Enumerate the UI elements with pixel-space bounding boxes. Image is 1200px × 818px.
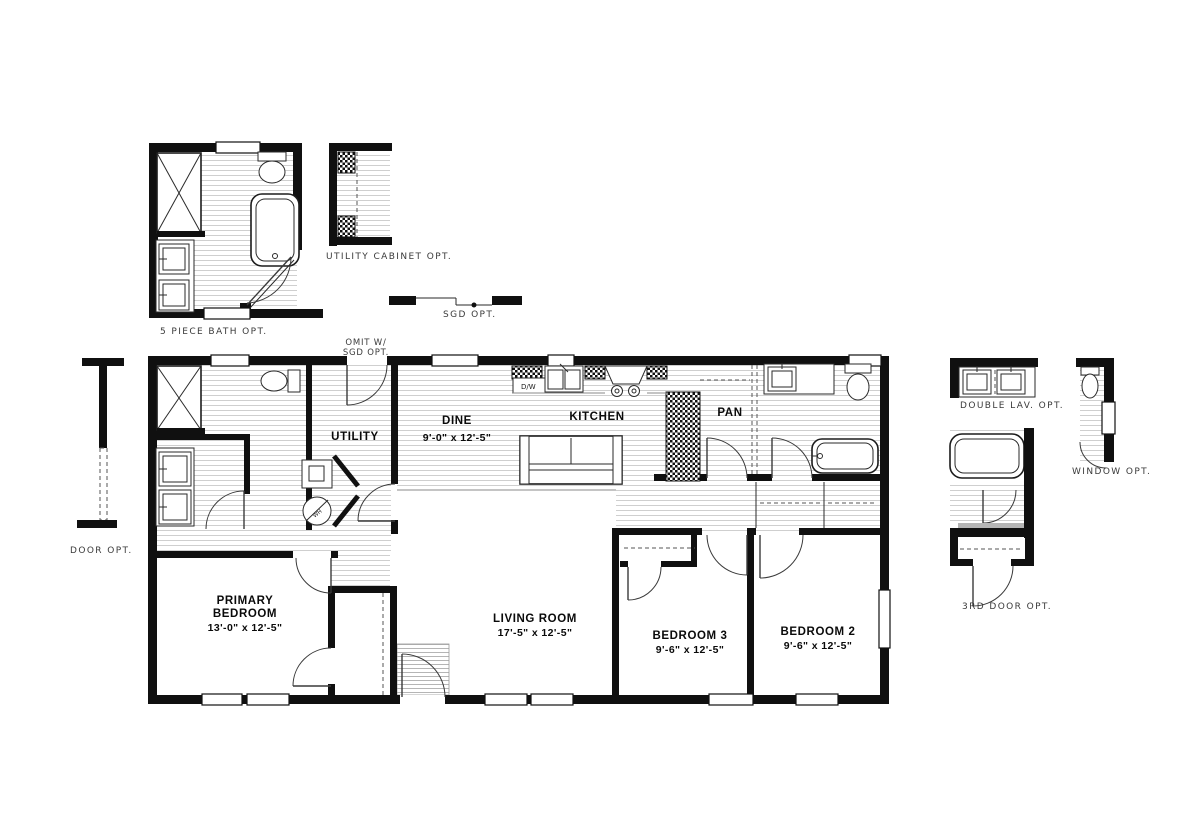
- omit-sgd-note: OMIT W/ SGD OPT.: [343, 338, 389, 358]
- shower-fixture: [157, 366, 205, 434]
- label-primary-bedroom-2: BEDROOM: [213, 608, 277, 620]
- label-sgd-opt: SGD OPT.: [443, 310, 496, 320]
- bath-vanity: [764, 363, 834, 394]
- label-utility: UTILITY: [331, 431, 379, 443]
- detail-5-piece-bath: 5 PIECE BATH OPT.: [149, 142, 323, 337]
- label-kitchen: KITCHEN: [569, 411, 624, 423]
- toilet-fixture: [258, 152, 286, 183]
- kitchen-island: [520, 436, 622, 484]
- backsplash-tile: [585, 366, 605, 379]
- floor-plan-page: 5 PIECE BATH OPT. UTILITY CABINET OPT. S…: [0, 0, 1200, 818]
- pantry-cabinet-block: [666, 392, 700, 481]
- label-5-piece-bath-opt: 5 PIECE BATH OPT.: [160, 327, 268, 337]
- label-bedroom-2: BEDROOM 2: [780, 626, 855, 638]
- dims-primary-bedroom: 13'-0" x 12'-5": [208, 622, 283, 634]
- label-bedroom-3: BEDROOM 3: [652, 630, 727, 642]
- third-door-floor-top: [950, 428, 1026, 434]
- furnace-box: [302, 460, 332, 488]
- lav-sink-1: [963, 366, 991, 394]
- water-heater: WH: [303, 497, 331, 525]
- backsplash-tile: [647, 366, 667, 379]
- dims-living-room: 17'-5" x 12'-5": [498, 627, 573, 639]
- label-living-room: LIVING ROOM: [493, 613, 577, 625]
- sgd-handle-dot: [472, 303, 477, 308]
- cabinet-block-top: [338, 152, 355, 173]
- label-primary-bedroom-1: PRIMARY: [217, 595, 274, 607]
- optional-window: [1102, 402, 1115, 434]
- dims-dine: 9'-0" x 12'-5": [423, 432, 491, 444]
- tub-fixture: [812, 439, 878, 473]
- floor-plan-drawing: 5 PIECE BATH OPT. UTILITY CABINET OPT. S…: [0, 0, 1200, 818]
- svg-text:D/W: D/W: [521, 383, 536, 391]
- dishwasher: D/W: [513, 378, 545, 393]
- bath-window-top: [216, 142, 260, 153]
- label-window-opt: WINDOW OPT.: [1072, 467, 1151, 477]
- label-door-opt: DOOR OPT.: [70, 546, 133, 556]
- label-pantry: PAN: [717, 407, 742, 419]
- dims-bedroom-3: 9'-6" x 12'-5": [656, 644, 724, 656]
- label-omit-line2: SGD OPT.: [343, 348, 389, 358]
- third-door-hall-floor: [950, 482, 1026, 524]
- cabinet-block-bottom: [338, 216, 355, 237]
- double-sink-vanity: [156, 448, 194, 526]
- label-utility-cabinet-opt: UTILITY CABINET OPT.: [326, 252, 452, 262]
- kitchen-sink: [545, 364, 583, 392]
- backsplash-tile: [512, 366, 542, 379]
- removed-wall-band: [958, 523, 1024, 528]
- label-3rd-door-opt: 3RD DOOR OPT.: [962, 602, 1052, 612]
- double-sink-vanity: [156, 240, 194, 312]
- toilet-fixture: [845, 364, 871, 400]
- bath-window-bottom: [204, 308, 250, 319]
- toilet-fixture: [1081, 367, 1099, 398]
- tub-fixture: [251, 194, 299, 266]
- lav-sink-2: [997, 366, 1025, 394]
- label-double-lav-opt: DOUBLE LAV. OPT.: [960, 401, 1064, 411]
- label-omit-line1: OMIT W/: [345, 338, 386, 348]
- tub-fixture: [950, 434, 1024, 478]
- dims-bedroom-2: 9'-6" x 12'-5": [784, 640, 852, 652]
- toilet-fixture: [261, 370, 300, 392]
- label-dine: DINE: [442, 415, 472, 427]
- shower-fixture: [157, 153, 205, 237]
- entry-steps: [397, 644, 449, 695]
